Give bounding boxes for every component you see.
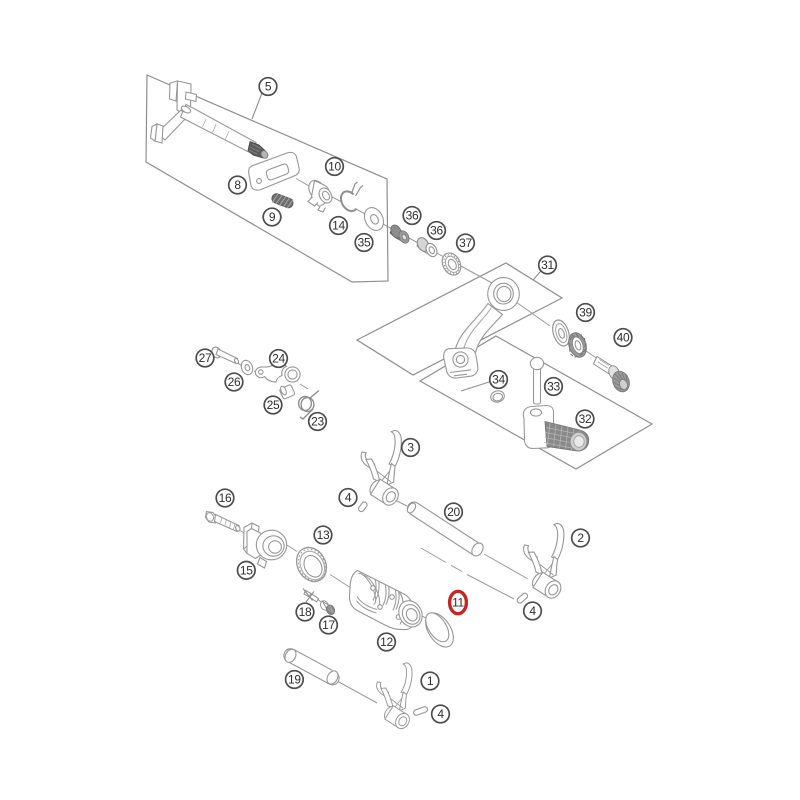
svg-text:37: 37 <box>459 236 472 250</box>
svg-text:19: 19 <box>288 673 301 687</box>
svg-text:33: 33 <box>547 380 560 394</box>
svg-text:11: 11 <box>452 596 464 610</box>
svg-text:14: 14 <box>332 219 345 233</box>
svg-text:31: 31 <box>541 258 554 272</box>
svg-text:8: 8 <box>234 178 241 192</box>
svg-text:9: 9 <box>269 210 276 224</box>
svg-text:23: 23 <box>311 415 324 429</box>
svg-text:2: 2 <box>577 531 584 545</box>
svg-text:36: 36 <box>430 224 443 238</box>
svg-text:16: 16 <box>219 491 232 505</box>
svg-text:26: 26 <box>228 375 241 389</box>
svg-text:3: 3 <box>407 441 414 455</box>
svg-text:4: 4 <box>345 491 352 505</box>
svg-text:36: 36 <box>406 209 419 223</box>
svg-text:25: 25 <box>267 398 280 412</box>
svg-text:32: 32 <box>579 412 592 426</box>
svg-text:4: 4 <box>437 707 444 721</box>
svg-text:12: 12 <box>380 635 393 649</box>
svg-text:34: 34 <box>492 373 505 387</box>
svg-text:10: 10 <box>328 160 341 174</box>
svg-text:35: 35 <box>358 236 371 250</box>
svg-text:18: 18 <box>299 605 312 619</box>
svg-text:4: 4 <box>529 604 536 618</box>
svg-text:17: 17 <box>322 618 335 632</box>
svg-text:24: 24 <box>272 352 285 366</box>
svg-text:15: 15 <box>240 564 253 578</box>
svg-text:39: 39 <box>579 306 592 320</box>
svg-text:40: 40 <box>617 331 630 345</box>
svg-text:27: 27 <box>199 351 212 365</box>
svg-text:20: 20 <box>447 505 460 519</box>
svg-text:13: 13 <box>317 528 330 542</box>
svg-text:1: 1 <box>427 674 434 688</box>
svg-text:5: 5 <box>265 80 272 94</box>
